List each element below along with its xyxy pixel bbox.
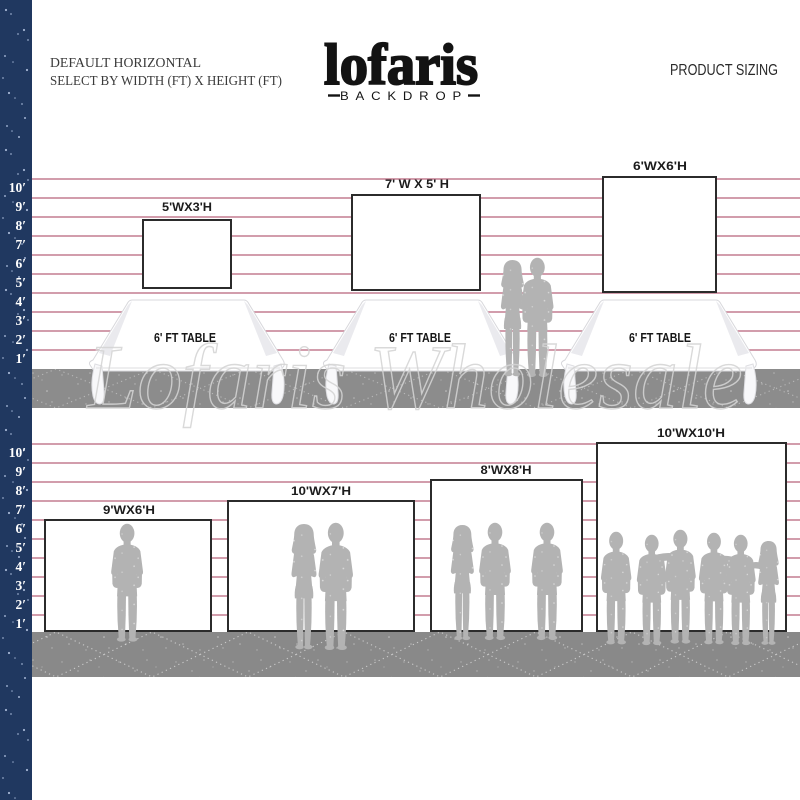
svg-text:2′: 2′ (15, 332, 26, 347)
svg-text:10'WX7'H: 10'WX7'H (291, 484, 351, 498)
svg-text:10′: 10′ (9, 445, 26, 460)
svg-text:DEFAULT HORIZONTAL: DEFAULT HORIZONTAL (50, 56, 201, 71)
svg-text:4′: 4′ (15, 294, 26, 309)
svg-text:10′: 10′ (9, 180, 26, 195)
svg-text:8'WX8'H: 8'WX8'H (481, 463, 532, 477)
svg-text:2′: 2′ (15, 597, 26, 612)
svg-text:5′: 5′ (15, 275, 26, 290)
svg-text:8′: 8′ (15, 483, 26, 498)
svg-text:7′: 7′ (15, 502, 26, 517)
svg-text:1′: 1′ (15, 616, 26, 631)
svg-text:7′: 7′ (15, 237, 26, 252)
svg-text:5′: 5′ (15, 540, 26, 555)
svg-text:BACKDROP: BACKDROP (340, 91, 468, 103)
svg-text:9′: 9′ (15, 199, 26, 214)
svg-text:6' FT TABLE: 6' FT TABLE (389, 331, 451, 345)
svg-text:6' FT TABLE: 6' FT TABLE (154, 331, 216, 345)
svg-text:SELECT BY WIDTH (FT) X HEIGHT: SELECT BY WIDTH (FT) X HEIGHT (FT) (50, 74, 282, 89)
svg-text:PRODUCT SIZING: PRODUCT SIZING (670, 62, 778, 79)
svg-text:8′: 8′ (15, 218, 26, 233)
svg-text:5'WX3'H: 5'WX3'H (162, 200, 212, 214)
svg-text:1′: 1′ (15, 351, 26, 366)
svg-text:lofaris: lofaris (324, 32, 478, 97)
svg-text:3′: 3′ (15, 578, 26, 593)
svg-text:10'WX10'H: 10'WX10'H (657, 426, 725, 440)
svg-text:3′: 3′ (15, 313, 26, 328)
svg-text:6'WX6'H: 6'WX6'H (633, 159, 687, 173)
svg-text:6' FT TABLE: 6' FT TABLE (629, 331, 691, 345)
svg-text:4′: 4′ (15, 559, 26, 574)
svg-text:6′: 6′ (15, 521, 26, 536)
svg-text:9'WX6'H: 9'WX6'H (103, 503, 155, 517)
svg-text:6′: 6′ (15, 256, 26, 271)
svg-text:9′: 9′ (15, 464, 26, 479)
svg-text:7' W X 5' H: 7' W X 5' H (385, 177, 449, 191)
